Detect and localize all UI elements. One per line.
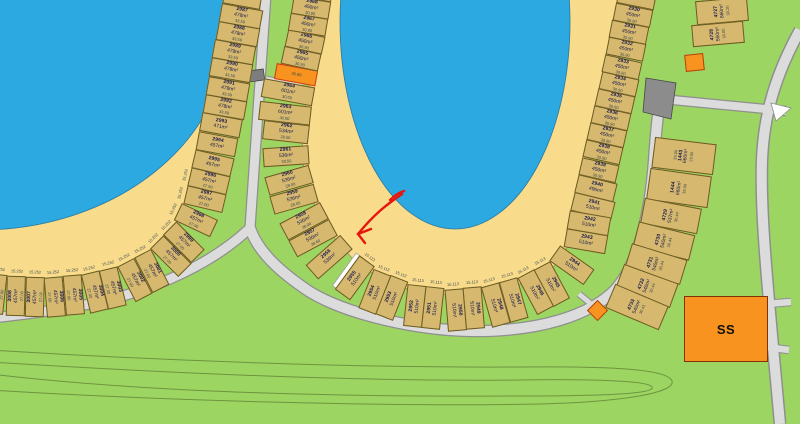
frontage-dimension: 15.252	[177, 187, 185, 200]
lot-area: 510m²	[585, 204, 600, 213]
lot-label: 2949510m²	[468, 301, 481, 316]
lot-label: 2997457m²27.00	[196, 190, 214, 209]
frontage-dimension: 15.252	[65, 267, 78, 273]
lot-label: 2968450m²30.90	[303, 0, 320, 17]
frontage-dimension: 15.252	[0, 266, 5, 272]
lot-dimension: 33.20	[725, 3, 731, 18]
lot-label: 2992478m²33.59	[216, 98, 233, 116]
lot-label: 3006457m²27.00	[47, 289, 64, 305]
lot-label: 2931450m²30.90	[621, 23, 638, 42]
lot-parcel-4728[interactable]: 4728550m²33.00	[691, 21, 745, 47]
lot-label: 2953510m²	[384, 290, 400, 307]
lot-dimension: 27.00	[19, 289, 24, 303]
lot-dimension: 27.00	[196, 201, 211, 209]
lot-label: 2987478m²33.59	[233, 6, 250, 24]
lot-label: 3004457m²27.00	[86, 283, 105, 301]
frontage-dimension: 15.252	[181, 169, 189, 182]
lot-label: 2933450m²30.90	[614, 57, 631, 76]
lot-area: 457m²	[209, 142, 224, 150]
lot-label: 3009457m²27.00	[0, 286, 5, 302]
frontage-dimension: 15.113	[466, 279, 478, 285]
lot-label: 2995457m²	[205, 156, 221, 170]
lot-area: 457m²	[205, 161, 220, 170]
lot-dimension: 28.00	[288, 200, 303, 208]
lot-label: 33.001443660m²23.00	[673, 148, 695, 165]
lot-dimension: 30.00	[280, 94, 295, 101]
lot-label: 3003457m²27.00	[104, 279, 123, 297]
lot-label: 2993471m²	[213, 118, 229, 132]
lot-dimension: 35.00	[681, 181, 688, 196]
lot-label: 2965450m²30.90	[293, 49, 310, 68]
lot-label: 3008457m²27.00	[8, 289, 24, 304]
frontage-dimension: 15.113	[411, 277, 423, 283]
lot-label: 3005457m²27.00	[65, 287, 82, 303]
frontage-dimension: 15.113	[430, 279, 442, 285]
lot-label: 4733540m²30.41	[627, 297, 647, 316]
lot-label: 2954510m²	[367, 283, 383, 300]
lot-label: 2990478m²33.59	[223, 61, 240, 79]
utility-building-north[interactable]	[684, 53, 705, 72]
lot-area: 510m²	[581, 221, 596, 229]
lot-label: 2939450m²30.90	[591, 160, 608, 179]
lot-dimension: 30.00	[277, 115, 292, 121]
lot-area: 496m²	[588, 186, 603, 195]
lot-label: 2940496m²	[588, 180, 605, 195]
lots-layer: 2930450m²30.902931450m²30.902932450m²30.…	[0, 0, 800, 424]
lot-label: 2947510m²	[507, 292, 522, 309]
lot-area: 510m²	[449, 303, 456, 318]
lot-area: 510m²	[468, 301, 475, 316]
subdivision-map: 2930450m²30.902931450m²30.902932450m²30.…	[0, 0, 800, 424]
sewage-station-building[interactable]: SS	[684, 296, 768, 362]
lot-label: 2989478m²33.59	[226, 43, 243, 61]
lot-label: 35.99	[291, 72, 302, 78]
lot-label: 2962534m²28.50	[278, 124, 294, 142]
lot-area: 510m²	[432, 301, 439, 316]
lot-label: 4728550m²33.00	[709, 26, 726, 42]
lot-label: 2951510m²	[427, 300, 440, 315]
lot-parcel-3008[interactable]: 3008457m²27.00	[6, 276, 26, 317]
lot-parcel-3005[interactable]: 3005457m²27.00	[63, 274, 85, 315]
lot-label: 4730540m²30.44	[654, 232, 673, 250]
lot-label: 2960536m²28.00	[280, 170, 298, 189]
lot-label: 2988478m²33.59	[229, 25, 246, 43]
lot-label: 2963601m²30.00	[277, 104, 293, 122]
lot-label: 3007457m²27.00	[26, 289, 42, 304]
frontage-dimension: 15.252	[47, 269, 60, 275]
lot-label: 2966450m²30.90	[296, 32, 313, 51]
lot-parcel-2961[interactable]: 2961536m²28.50	[262, 145, 309, 168]
lot-label: 2961536m²28.50	[278, 147, 293, 164]
lot-dimension: 27.00	[0, 287, 5, 302]
lot-area: 471m²	[213, 124, 228, 132]
lot-label: 2959536m²28.00	[285, 189, 303, 208]
lot-label: 4732540m²30.44	[637, 277, 657, 296]
lot-label: 2942510m²	[581, 216, 597, 230]
lot-label: 4727660m²33.20	[713, 3, 730, 19]
lot-dimension: 28.50	[279, 159, 293, 165]
lot-area: 510m²	[414, 299, 421, 314]
lot-dimension: 28.50	[278, 135, 293, 141]
lot-label: 2938450m²30.90	[595, 143, 612, 162]
lot-label: 2943510m²	[578, 234, 594, 248]
lot-label: 2998457m²27.00	[186, 210, 206, 231]
frontage-dimension: 15.252	[10, 268, 22, 273]
lot-dimension: 35.99	[291, 72, 302, 78]
lot-label: 2991478m²33.59	[219, 80, 236, 98]
lot-parcel-3006[interactable]: 3006457m²27.00	[44, 276, 66, 317]
lot-label: 4731540m²30.44	[646, 255, 666, 273]
frontage-dimension: 15.252	[29, 269, 41, 274]
lot-label: 2964601m²30.00	[280, 83, 297, 101]
lot-label: 1444660m²35.00	[670, 180, 688, 196]
lot-label: 2941510m²	[585, 199, 602, 214]
lot-dimension: 27.00	[38, 290, 43, 304]
lot-label: 2952510m²	[408, 298, 421, 313]
frontage-dimension: 15.252	[101, 260, 114, 268]
lot-label: 2996457m²27.00	[200, 171, 218, 190]
lot-area: 510m²	[578, 240, 593, 248]
lot-label: 2950510m²	[449, 302, 462, 317]
lot-parcel-2950[interactable]: 2950510m²	[445, 288, 467, 331]
lot-label: 2930450m²30.90	[624, 6, 641, 25]
lot-label: 2948510m²	[489, 297, 504, 314]
lot-dimension: 30.44	[673, 210, 680, 225]
frontage-dimension: 15.113	[447, 281, 459, 287]
lot-label: 4729537m²30.44	[662, 208, 681, 225]
lot-dimension: 33.00	[721, 26, 727, 41]
lot-label: 2967450m²30.90	[300, 16, 317, 34]
lot-label: 2956536m²	[320, 248, 338, 266]
lot-label: 2945510m²	[544, 275, 561, 293]
lot-dimension: 27.00	[65, 288, 71, 303]
lot-dimension: 23.00	[689, 150, 695, 165]
lot-label: 2946510m²	[527, 283, 544, 301]
lot-label: 2955510m²	[346, 269, 364, 287]
ss-building-label: SS	[717, 322, 735, 337]
lot-label: 2994457m²	[209, 137, 225, 151]
lot-label: 2932450m²30.90	[617, 40, 634, 59]
lot-label: 2944510m²	[563, 256, 581, 274]
lot-parcel-3007[interactable]: 3007457m²27.00	[25, 276, 45, 317]
lot-dimension: 27.00	[47, 290, 53, 305]
